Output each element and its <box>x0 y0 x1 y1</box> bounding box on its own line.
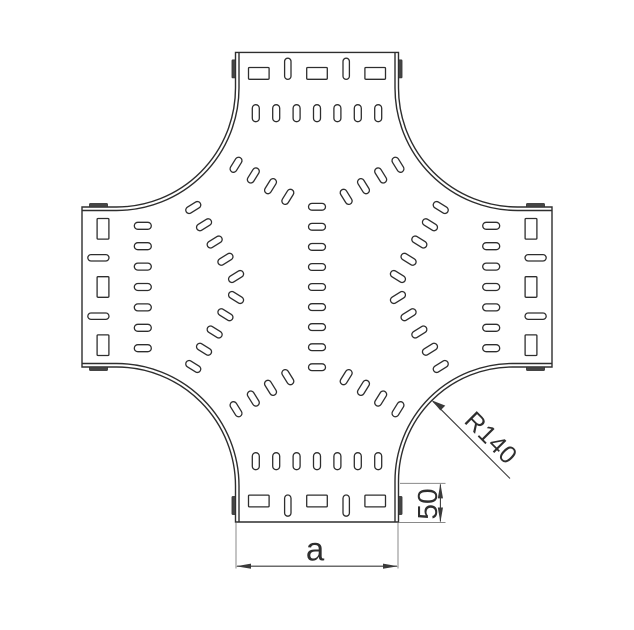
svg-text:a: a <box>306 531 325 568</box>
svg-text:R140: R140 <box>459 406 523 470</box>
svg-text:50: 50 <box>412 488 443 519</box>
